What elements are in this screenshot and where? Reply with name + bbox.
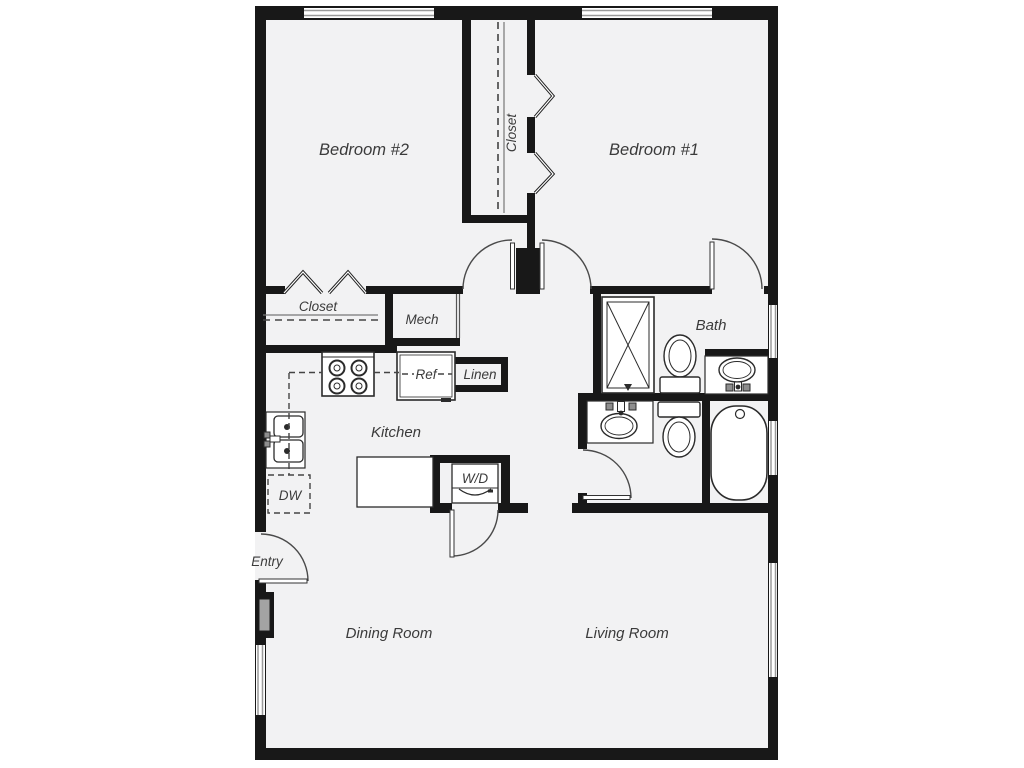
sink-lower <box>587 401 653 443</box>
wall-main-c <box>590 286 712 294</box>
wall-tub-divider <box>702 401 710 503</box>
wall-main-b <box>366 286 463 294</box>
ref-handle <box>441 398 451 402</box>
label-wd: W/D <box>462 471 488 486</box>
wall-outer-left-upper <box>255 6 266 532</box>
faucet-icon <box>618 402 625 412</box>
wall-lowerbath-west <box>578 393 587 449</box>
wall-bath-west <box>593 286 601 400</box>
faucet-icon <box>264 441 270 447</box>
wall-closet-bottom <box>462 215 535 223</box>
wall-wd-east <box>501 455 510 505</box>
shower <box>602 297 654 393</box>
label-linen: Linen <box>463 367 496 382</box>
wall-main-d <box>764 286 778 294</box>
label-dining: Dining Room <box>346 625 433 642</box>
door-leaf-bath-ensuite <box>710 242 714 289</box>
floor-plan-svg: Bedroom #2 Bedroom #1 Closet Closet Mech… <box>0 0 1024 768</box>
faucet-icon <box>606 403 613 410</box>
label-dw: DW <box>279 488 303 503</box>
wall-outer-bottom <box>255 748 778 760</box>
window-bedroom2-top <box>304 8 434 18</box>
wall-door-stub <box>516 248 540 294</box>
faucet-icon <box>270 436 280 442</box>
bathtub <box>711 406 767 500</box>
label-bedroom1: Bedroom #1 <box>609 141 699 159</box>
wall-wd-top <box>430 455 510 463</box>
label-kitchen: Kitchen <box>371 424 421 441</box>
window-entry-left <box>256 645 265 715</box>
stove <box>322 352 374 396</box>
wall-linen-right <box>501 357 508 392</box>
faucet-icon <box>743 384 750 391</box>
door-leaf-lower-bath <box>583 496 630 500</box>
label-closet-bedroom2: Closet <box>299 299 339 314</box>
faucet-icon <box>264 432 270 438</box>
wall-sink-nook <box>705 349 770 356</box>
fireplace <box>255 592 274 638</box>
kitchen-island <box>357 457 433 507</box>
wall-closet-bedroom1-a <box>527 6 535 75</box>
label-closet-bedroom1: Closet <box>504 113 519 153</box>
faucet-icon <box>629 403 636 410</box>
floor-plan-page: Bedroom #2 Bedroom #1 Closet Closet Mech… <box>0 0 1024 768</box>
wall-mech-south <box>385 338 460 346</box>
label-entry: Entry <box>251 554 284 569</box>
sink-upper <box>705 356 768 394</box>
wall-linen-top <box>455 357 508 364</box>
wall-closet-bedroom1-b <box>527 117 535 153</box>
faucet-icon <box>726 384 733 391</box>
window-bedroom1-top <box>582 8 712 18</box>
kitchen-sink <box>264 412 305 468</box>
label-mech: Mech <box>405 312 438 327</box>
wall-main-a <box>255 286 285 294</box>
door-leaf-entry <box>259 579 307 583</box>
window-living-right <box>769 563 777 677</box>
wall-bedroom2-closet <box>462 6 471 223</box>
wall-mech-west <box>385 286 393 345</box>
label-bath: Bath <box>696 317 727 334</box>
tub-drain-icon <box>736 410 745 419</box>
label-bedroom2: Bedroom #2 <box>319 141 409 159</box>
window-tub-right <box>769 421 777 475</box>
door-leaf-bedroom1 <box>540 243 544 289</box>
door-leaf-wd-closet <box>450 510 454 557</box>
label-living: Living Room <box>585 625 668 642</box>
window-bath-right <box>769 305 777 358</box>
wall-lowerbath-south <box>572 503 778 513</box>
door-leaf-bedroom2 <box>511 243 515 289</box>
label-ref: Ref <box>415 367 437 382</box>
